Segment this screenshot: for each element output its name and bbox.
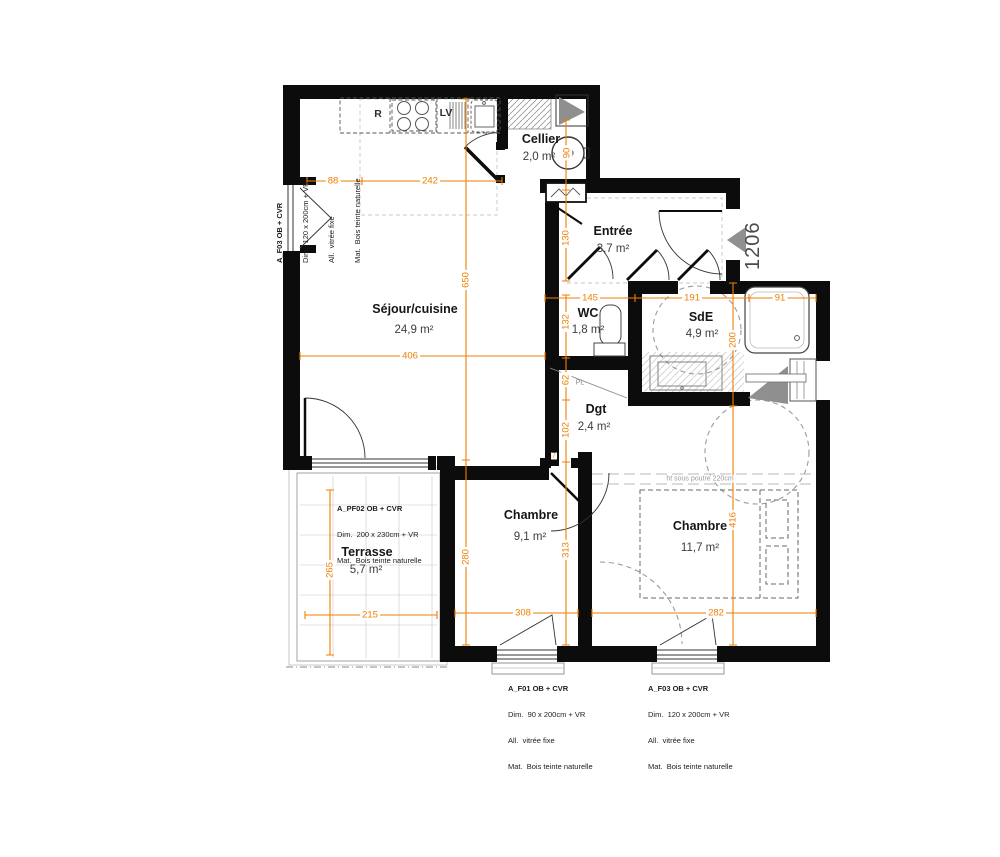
annotation-title: A_PF02 OB + CVR <box>337 505 422 514</box>
floor-plan-drawing <box>0 0 1000 857</box>
annotation-line: Dim. 120 x 200cm + VR <box>648 711 733 720</box>
annotation-line: All. vitrée fixe <box>648 737 733 746</box>
window-bedroom1 <box>492 615 564 674</box>
dim-308: 308 <box>513 608 533 619</box>
room-name-dgt: Dgt <box>586 402 607 416</box>
room-area-wc: 1,8 m² <box>572 324 605 336</box>
annotation-bedroom1-window: A_F01 OB + CVR Dim. 90 x 200cm + VR All.… <box>508 668 593 780</box>
annotation-line: Mat. Bois teinte naturelle <box>337 557 422 566</box>
window-bedroom2 <box>652 615 724 674</box>
fridge-label: R <box>374 108 382 120</box>
annotation-left-window: A_F03 OB + CVR Dim. 120 x 200cm + VR All… <box>259 151 371 263</box>
annotation-line: Dim. 90 x 200cm + VR <box>508 711 593 720</box>
dim-145: 145 <box>580 293 600 304</box>
room-area-sejour: 24,9 m² <box>395 324 434 336</box>
dim-62: 62 <box>561 373 572 388</box>
dim-90: 90 <box>562 146 573 161</box>
annotation-terrace-window: A_PF02 OB + CVR Dim. 200 x 230cm + VR Ma… <box>337 488 422 574</box>
room-name-wc: WC <box>578 306 599 320</box>
dim-191: 191 <box>682 293 702 304</box>
annotation-title: A_F03 OB + CVR <box>648 685 733 694</box>
duct-hatch <box>505 95 551 129</box>
annotation-title: A_F03 OB + CVR <box>276 151 285 263</box>
room-area-sde: 4,9 m² <box>686 328 719 340</box>
dishwasher-label: LV <box>440 107 453 119</box>
room-name-entree: Entrée <box>594 224 633 238</box>
dim-650: 650 <box>461 270 472 290</box>
dim-7: 7 <box>551 453 557 460</box>
annotation-bedroom2-window: A_F03 OB + CVR Dim. 120 x 200cm + VR All… <box>648 668 733 780</box>
dim-313: 313 <box>561 540 572 560</box>
kitchen-counter <box>340 98 500 133</box>
dim-132: 132 <box>561 312 572 332</box>
annotation-line: Mat. Bois teinte naturelle <box>508 763 593 772</box>
room-name-chambre2: Chambre <box>673 519 727 533</box>
room-name-chambre1: Chambre <box>504 508 558 522</box>
door-jambs <box>300 142 830 662</box>
annotation-line: Dim. 120 x 200cm + VR <box>302 151 311 263</box>
annotation-line: Mat. Bois teinte naturelle <box>354 151 363 263</box>
room-area-chambre1: 9,1 m² <box>514 531 547 543</box>
dim-102: 102 <box>561 420 572 440</box>
room-name-sde: SdE <box>689 310 713 324</box>
window-terrace-bay <box>312 456 428 470</box>
placard-label: PL <box>576 380 585 387</box>
annotation-line: Dim. 200 x 230cm + VR <box>337 531 422 540</box>
room-area-dgt: 2,4 m² <box>578 421 611 433</box>
dim-215: 215 <box>360 610 380 621</box>
dim-200: 200 <box>728 330 739 350</box>
dim-242: 242 <box>420 176 440 187</box>
annotation-line: Mat. Bois teinte naturelle <box>648 763 733 772</box>
dim-265: 265 <box>325 560 336 580</box>
room-area-cellier: 2,0 m² <box>523 151 556 163</box>
sink-icon <box>471 100 498 132</box>
room-name-cellier: Cellier <box>522 132 560 146</box>
dim-406: 406 <box>400 351 420 362</box>
dim-280: 280 <box>461 547 472 567</box>
room-area-chambre2: 11,7 m² <box>681 542 719 554</box>
dim-416: 416 <box>728 510 739 530</box>
dim-282: 282 <box>706 608 726 619</box>
beam-height-note: ht sous poutre 220cm <box>663 476 736 483</box>
annotation-line: All. vitrée fixe <box>508 737 593 746</box>
floor-plan: Séjour/cuisine 24,9 m² Cellier 2,0 m² En… <box>0 0 1000 857</box>
annotation-title: A_F01 OB + CVR <box>508 685 593 694</box>
dim-91: 91 <box>773 293 788 304</box>
stove-icon <box>398 102 429 131</box>
room-name-sejour: Séjour/cuisine <box>372 302 457 316</box>
annotation-line: All. vitrée fixe <box>328 151 337 263</box>
dim-130: 130 <box>561 228 572 248</box>
room-area-entree: 3,7 m² <box>597 243 630 255</box>
unit-number: 1206 <box>742 222 765 271</box>
